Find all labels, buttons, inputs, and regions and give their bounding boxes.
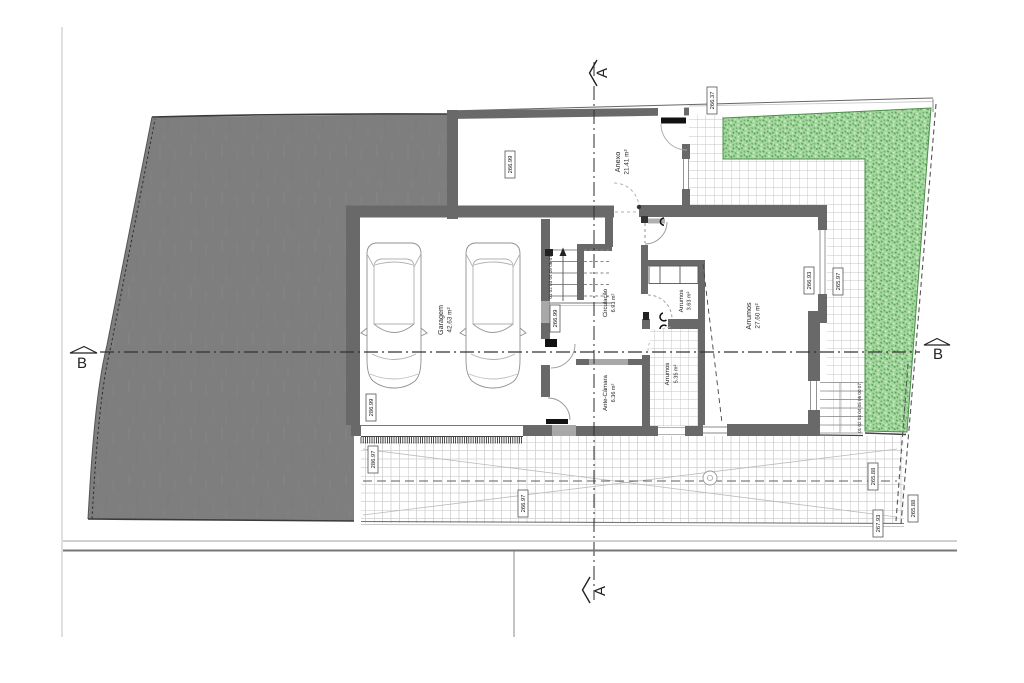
svg-text:266.93: 266.93 [806, 272, 813, 290]
svg-text:266.97: 266.97 [520, 495, 527, 513]
svg-text:01 02 03 04 05 06 07: 01 02 03 04 05 06 07 [548, 255, 553, 299]
svg-text:42.63 m²: 42.63 m² [447, 307, 454, 332]
svg-text:Garagem: Garagem [436, 305, 445, 335]
svg-text:A: A [592, 586, 609, 596]
svg-text:21.41 m²: 21.41 m² [624, 149, 631, 174]
svg-text:5.35 m²: 5.35 m² [674, 365, 680, 384]
svg-text:286.97: 286.97 [370, 451, 377, 469]
svg-text:Arrumos: Arrumos [664, 363, 671, 386]
svg-text:B: B [933, 346, 943, 363]
svg-text:01 02 03 04 05 06 00 07: 01 02 03 04 05 06 00 07 [857, 383, 862, 433]
svg-text:265.88: 265.88 [910, 500, 917, 518]
svg-text:265.97: 265.97 [835, 273, 842, 291]
svg-text:286.99: 286.99 [368, 399, 375, 417]
svg-text:266.99: 266.99 [507, 156, 514, 174]
svg-text:A: A [594, 68, 611, 78]
svg-text:Circulação: Circulação [602, 288, 609, 317]
svg-text:6.93 m²: 6.93 m² [611, 294, 617, 313]
svg-text:266.99: 266.99 [552, 310, 559, 328]
svg-text:Anexo: Anexo [613, 152, 622, 172]
svg-text:27.60 m²: 27.60 m² [755, 303, 762, 328]
svg-text:3.63 m²: 3.63 m² [687, 292, 693, 311]
svg-text:6.36 m²: 6.36 m² [611, 384, 617, 403]
svg-text:267.93: 267.93 [875, 515, 882, 533]
svg-text:Ante-Câmara: Ante-Câmara [602, 375, 609, 411]
svg-text:Arrumos: Arrumos [678, 290, 685, 313]
svg-text:Arrumos: Arrumos [744, 302, 753, 330]
svg-text:B: B [77, 355, 87, 372]
svg-text:266.37: 266.37 [709, 92, 716, 110]
svg-text:265.88: 265.88 [870, 468, 877, 486]
